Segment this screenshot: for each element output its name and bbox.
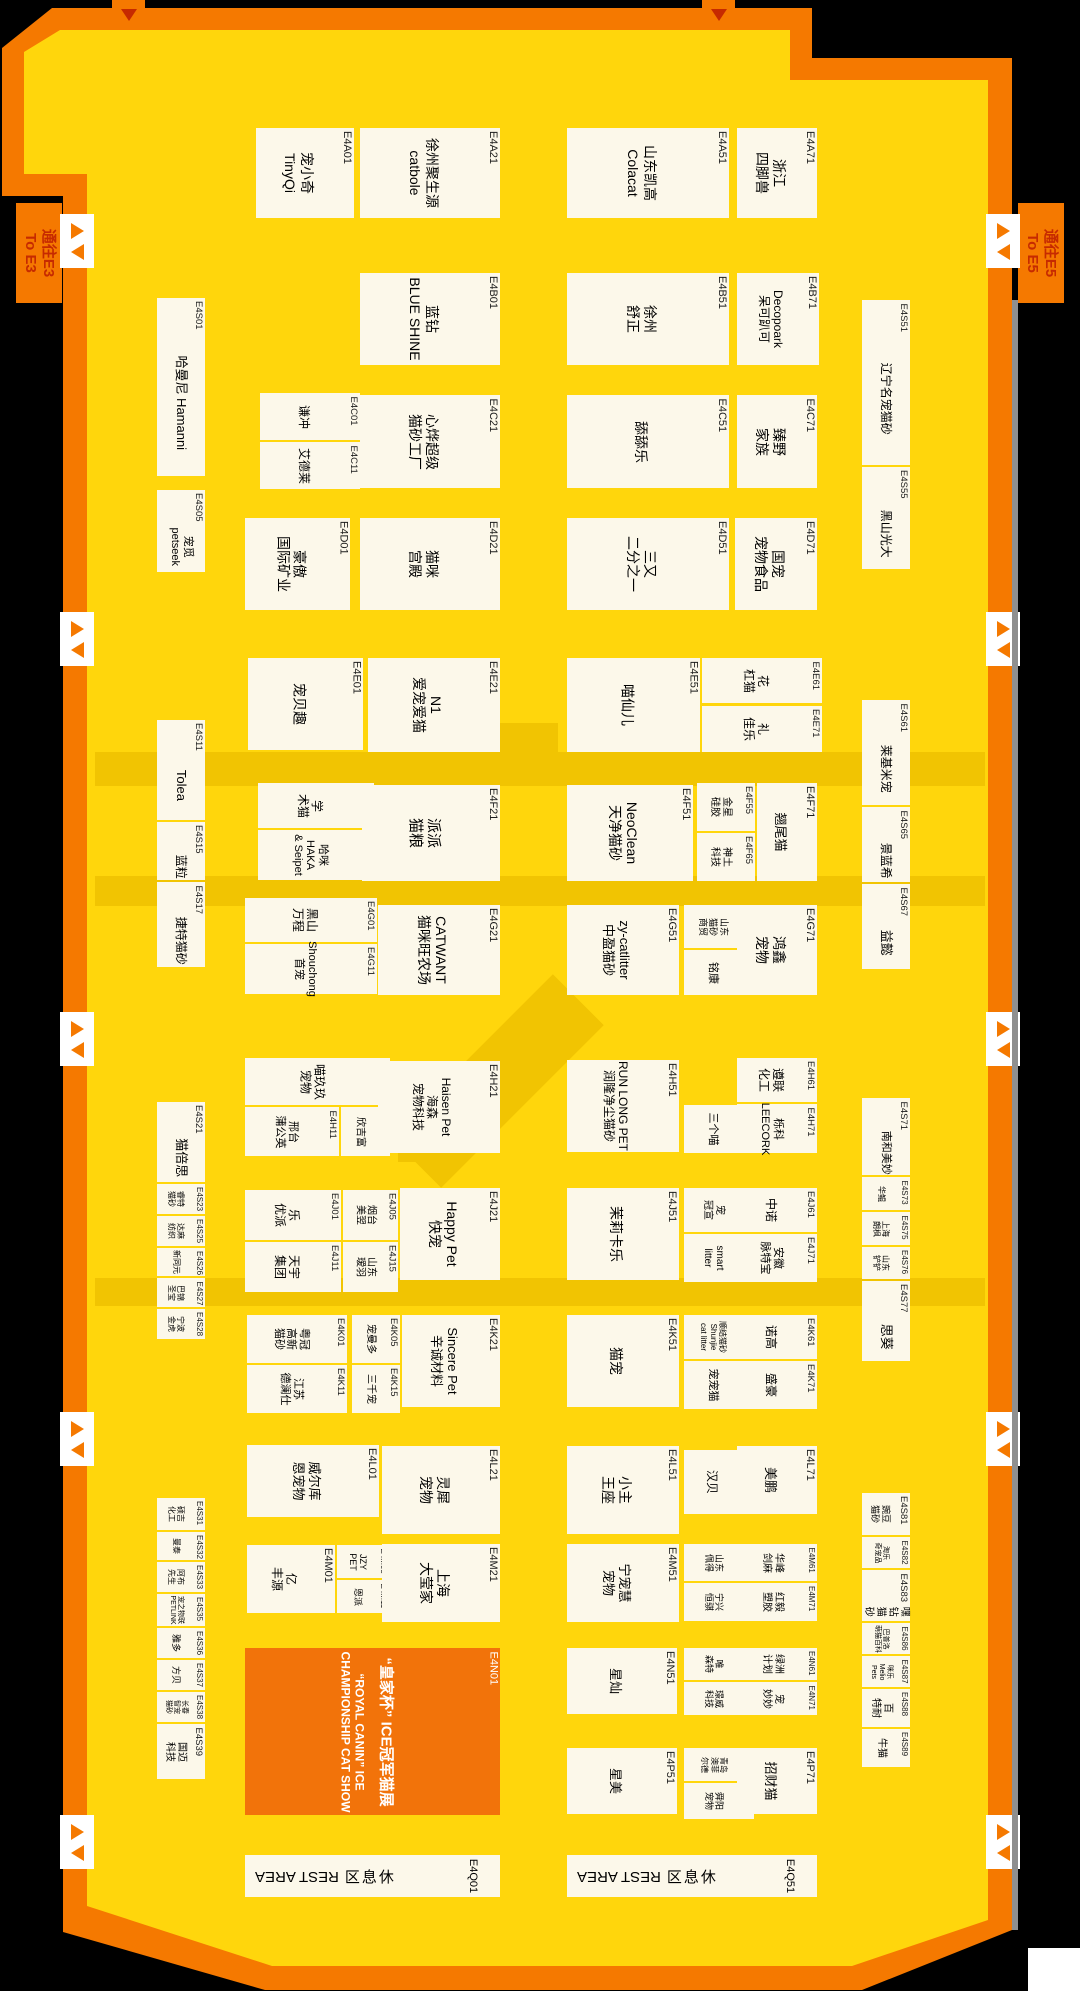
floorplan-hall-e4: E4A01宠小奇 TinyQiE4A21徐州聚生源 catboleE4A51山东…	[0, 0, 1080, 1991]
booth-exhibitor-name: 学 术猫	[258, 783, 362, 828]
booth-exhibitor-name: 咪乐 Melio Pets	[862, 1656, 900, 1687]
gate-arrow-icon	[71, 223, 84, 239]
booth-inner: E4P71招财猫	[737, 1748, 817, 1814]
booth-id-label: E4S33	[195, 1562, 205, 1592]
booth-exhibitor-name: 南和美妙	[862, 1130, 910, 1175]
booth-id-label: E4C51	[715, 395, 729, 488]
booth-id-label: E4A71	[803, 128, 817, 218]
booth-exhibitor-name: 金星 硅胶	[697, 783, 743, 831]
booth-exhibitor-name: 遵联 化工	[737, 1058, 805, 1102]
gate-arrow-icon	[997, 1042, 1010, 1058]
booth-exhibitor-name: Shouchong 首宠	[245, 944, 365, 994]
booth-inner: E4B71Decopoark 呆可趴可	[737, 273, 819, 365]
booth-exhibitor-name: 上海 朗枫	[862, 1212, 900, 1245]
booth-exhibitor-name: 黑山 万程	[245, 898, 365, 942]
booth-id-label: E4S86	[900, 1623, 910, 1654]
booth-inner: E4G01黑山 万程	[245, 898, 377, 942]
booth-E4S81: E4S81豌豆 猫砂	[862, 1493, 910, 1535]
booth-id-label: E4L71	[803, 1446, 817, 1514]
booth-id-label: E4S61	[862, 700, 910, 732]
booth-exhibitor-name: 猫宠	[567, 1315, 665, 1407]
booth-id-label: E4S75	[900, 1212, 910, 1245]
tab-arrow-icon	[121, 9, 137, 21]
booth-inner: E4H01喵玖玖 宠物	[245, 1058, 390, 1105]
rest-area-cjk-label: 区息休	[667, 1866, 718, 1887]
booth-E4A21: E4A21徐州聚生源 catbole	[360, 128, 500, 218]
booth-E4S39: E4S39国迈 科技	[157, 1724, 205, 1779]
booth-id-label: E4G21	[486, 905, 500, 995]
booth-exhibitor-name: 三个喵	[684, 1105, 742, 1153]
booth-exhibitor-name: 猫咪 宫殿	[360, 518, 486, 610]
booth-id-label: E4F21	[486, 785, 500, 881]
booth-exhibitor-name: 长春 智宠 猫砂	[157, 1692, 195, 1722]
booth-id-label: E4S67	[862, 884, 910, 916]
booth-E4S21: E4S21猫倍思	[157, 1102, 205, 1182]
booth-inner: E4S76山东 铲铲	[862, 1247, 910, 1279]
booth-id-label: E4D71	[803, 518, 817, 610]
booth-E4S15: E4S15蓝粒	[157, 822, 205, 880]
booth-exhibitor-name: 乐 优派	[245, 1190, 329, 1240]
booth-id-label: E4J61	[805, 1188, 817, 1232]
gate-arrow-icon	[997, 1021, 1010, 1037]
booth-E4S05: E4S05宠觅 petseek	[157, 490, 205, 572]
booth-exhibitor-name: 蓝钻 BLUE SHINE	[360, 273, 486, 365]
booth-id-label: E4E21	[486, 658, 500, 752]
booth-inner: E4A51山东凯高 Colacat	[567, 128, 729, 218]
to-e3-sign: 通往E3 To E3	[16, 203, 62, 303]
booth-E4M61: E4M61华峰 剑麻	[737, 1544, 817, 1581]
booth-inner: E4F51NeoClean 天净猫砂	[567, 785, 693, 881]
booth-E4L21: E4L21灵犀 宠物	[382, 1446, 500, 1534]
booth-E4K05: E4K05宠曼多	[352, 1315, 400, 1363]
booth-E4C11: E4C11艾德莱	[260, 442, 360, 489]
booth-inner: E4E01宠贝趣	[248, 658, 363, 750]
booth-id-label: E4C01	[348, 393, 360, 440]
booth-E4F01: E4F01学 术猫	[258, 783, 374, 828]
booth-E4J61: E4J61中诺	[737, 1188, 817, 1232]
booth-id-label: E4H51	[665, 1060, 679, 1152]
booth-exhibitor-name: 蓝粒	[157, 854, 205, 880]
booth-inner: E4B51徐州 舒正	[567, 273, 729, 365]
booth-inner: E4H71栎科 LEECORK	[737, 1104, 817, 1153]
booth-E4C01: E4C01谦冲	[260, 393, 360, 440]
booth-E4H71: E4H71栎科 LEECORK	[737, 1104, 817, 1153]
booth-exhibitor-name: 绿洲 计划	[737, 1648, 807, 1680]
booth-E4S77: E4S77思葵	[862, 1281, 910, 1361]
gate-arrow-icon	[71, 244, 84, 260]
booth-E4S73: E4S73华鲲	[862, 1177, 910, 1210]
booth-E4S17: E4S17捷特猫砂	[157, 882, 205, 967]
rest-area-cjk-label: 区息休	[345, 1866, 396, 1887]
booth-id-label: E4S37	[195, 1660, 205, 1690]
booth-id-label: E4S11	[157, 720, 205, 751]
gate-arrow-icon	[997, 642, 1010, 658]
booth-E4F11: E4F11哈咪 HAKA & Seipet	[258, 830, 374, 880]
booth-inner: E4E61花 杠猫	[702, 658, 822, 703]
booth-exhibitor-name: 国宠 宠物食品	[735, 518, 803, 610]
booth-exhibitor-name: 国迈 科技	[157, 1724, 193, 1779]
booth-id-label: E4S26	[195, 1248, 205, 1276]
booth-id-label: E4M61	[807, 1544, 817, 1581]
booth-exhibitor-name: zy-catlitter 中盈猫砂	[567, 905, 665, 995]
booth-exhibitor-name: 捷特猫砂	[157, 914, 205, 967]
booth-inner: E4K11江苏 德澜仕	[247, 1365, 347, 1413]
booth-E4S89: E4S89牛猫	[862, 1729, 910, 1767]
booth-inner: E4S37方贝	[157, 1660, 205, 1690]
booth-exhibitor-subtitle: “ROYAL CANIN” ICE CHAMPIONSHIP CAT SHOW	[338, 1651, 366, 1812]
gate-arrow-icon	[71, 1042, 84, 1058]
booth-E4Q01: REST AREA区息休E4Q01	[245, 1855, 500, 1897]
booth-exhibitor-name: 舜阳 宠物	[684, 1783, 744, 1819]
entrance-gate-left	[60, 214, 94, 268]
booth-exhibitor-name: 宠宠猫	[684, 1361, 742, 1409]
booth-E4S65: E4S65景蓝希	[862, 807, 910, 882]
booth-exhibitor-name: 阿布 先生	[157, 1562, 195, 1592]
booth-E4J11: E4J11天宇 集团	[245, 1242, 341, 1292]
booth-exhibitor-name: 诺高	[737, 1315, 805, 1359]
booth-exhibitor-name: 豪傲 国际矿业	[245, 518, 336, 610]
booth-exhibitor-name: 方贝	[157, 1660, 195, 1690]
booth-id-label: E4G51	[665, 905, 679, 995]
booth-id-label: E4K21	[486, 1315, 500, 1407]
booth-id-label: E4S28	[195, 1309, 205, 1339]
booth-id-label: E4K05	[388, 1315, 400, 1363]
booth-inner: E4J51茉莉卡乐	[567, 1188, 679, 1280]
booth-inner: E4S27巴锦 圣宝	[157, 1278, 205, 1307]
booth-exhibitor-name: 哈曼尼 Hamanni	[157, 330, 205, 476]
booth-exhibitor-name: 美鹏	[737, 1446, 803, 1514]
booth-E4L51: E4L51小主 王座	[567, 1446, 679, 1534]
booth-exhibitor-name: 宁宠慧 宠物	[567, 1544, 665, 1622]
booth-E4N61: E4N61绿洲 计划	[737, 1648, 817, 1680]
booth-exhibitor-name: 威尔库 恩宠物	[247, 1445, 365, 1517]
booth-exhibitor-name: 翘尾猫	[757, 783, 803, 881]
booth-id-label: E4G01	[365, 898, 377, 942]
booth-E4S55: E4S55黑山光大	[862, 467, 910, 569]
booth-inner: E4S23睿特 猫砂	[157, 1184, 205, 1214]
booth-exhibitor-name: 百 特耐	[862, 1689, 900, 1727]
booth-E4S83: E4S83嘿钻猫砂	[862, 1570, 910, 1621]
booth-id-label: E4S82	[900, 1537, 910, 1568]
booth-exhibitor-name: 花 杠猫	[702, 658, 810, 703]
booth-E4S26: E4S26新同元	[157, 1248, 205, 1276]
booth-id-label: E4S89	[900, 1729, 910, 1767]
booth-E4J51: E4J51茉莉卡乐	[567, 1188, 679, 1280]
booth-exhibitor-name: 徐州聚生源 catbole	[360, 128, 486, 218]
booth-exhibitor-name: 山东凯高 Colacat	[567, 128, 715, 218]
booth-id-label: E4S36	[195, 1628, 205, 1658]
booth-exhibitor-name: 山东 猫砂 商贸	[684, 905, 742, 948]
booth-exhibitor-name: smart litter	[684, 1234, 742, 1282]
booth-E4D21: E4D21猫咪 宫殿	[360, 518, 500, 610]
booth-inner: E4S21猫倍思	[157, 1102, 205, 1182]
booth-exhibitor-name: 宁兴 恒骐	[684, 1583, 744, 1621]
booth-inner: E4S11Tolea	[157, 720, 205, 820]
booth-inner: E4L71美鹏	[737, 1446, 817, 1514]
booth-E4S82: E4S82淘乐 奇宠品	[862, 1537, 910, 1568]
booth-exhibitor-name: 华鲲	[862, 1177, 900, 1210]
booth-id-label: E4S76	[900, 1247, 910, 1279]
booth-inner: E4F21派派 猫粮	[362, 785, 500, 881]
booth-id-label: E4A21	[486, 128, 500, 218]
booth-id-label: E4S31	[195, 1498, 205, 1530]
gate-arrow-icon	[71, 1421, 84, 1437]
booth-exhibitor-name: NeoClean 天净猫砂	[567, 785, 679, 881]
entrance-gate-left	[60, 612, 94, 666]
booth-id-label: E4M01	[321, 1545, 335, 1613]
booth-id-label: E4S23	[195, 1184, 205, 1214]
booth-id-label: E4S32	[195, 1532, 205, 1560]
booth-exhibitor-name: 豌豆 猫砂	[862, 1493, 898, 1535]
booth-exhibitor-name: 华峰 剑麻	[737, 1544, 807, 1581]
booth-inner: E4G51zy-catlitter 中盈猫砂	[567, 905, 679, 995]
booth-id-label: E4S71	[862, 1098, 910, 1130]
booth-exhibitor-name: 雅多	[157, 1628, 195, 1658]
booth-inner: E4K05宠曼多	[352, 1315, 400, 1363]
booth-exhibitor-name: 喵玖玖 宠物	[245, 1058, 378, 1105]
booth-inner: E4D01豪傲 国际矿业	[245, 518, 350, 610]
booth-inner: E4S28宁波 金虎	[157, 1309, 205, 1339]
gate-arrow-icon	[71, 1845, 84, 1861]
booth-inner: E4S38长春 智宠 猫砂	[157, 1692, 205, 1722]
booth-exhibitor-name: 达麻 纺织	[157, 1216, 195, 1246]
booth-id-label: E4J21	[486, 1188, 500, 1280]
booth-inner: E4S35宠之物联 PETLINK	[157, 1594, 205, 1626]
booth-exhibitor-name: 璟威 科技	[684, 1682, 744, 1715]
booth-exhibitor-name: 茉莉卡乐	[567, 1188, 665, 1280]
gate-arrow-icon	[71, 1824, 84, 1840]
booth-exhibitor-name: 天宇 集团	[245, 1242, 329, 1292]
entrance-gate-left	[60, 1815, 94, 1869]
booth-id-label: E4Q51	[784, 1859, 796, 1893]
booth-id-label: E4S17	[157, 882, 205, 914]
booth-E4F71: E4F71翘尾猫	[757, 783, 817, 881]
booth-E4S25: E4S25达麻 纺织	[157, 1216, 205, 1246]
booth-id-label: E4N01	[486, 1648, 500, 1815]
booth-id-label: E4J15	[386, 1242, 398, 1292]
booth-inner: E4M51宁宠慧 宠物	[567, 1544, 679, 1622]
booth-inner: E4H51RUN LONG PET 润隆净尘猫砂	[567, 1060, 679, 1152]
booth-exhibitor-name: 汉贝	[684, 1450, 740, 1514]
booth-E4C71: E4C71臻野 家族	[737, 395, 817, 488]
booth-id-label: E4A51	[715, 128, 729, 218]
booth-inner: E4P51星美	[567, 1748, 677, 1814]
booth-E4S37: E4S37方贝	[157, 1660, 205, 1690]
booth-id-label: E4Q01	[467, 1859, 479, 1893]
booth-inner: E4S25达麻 纺织	[157, 1216, 205, 1246]
booth-E4K15: E4K15三千宠	[352, 1365, 400, 1413]
entrance-gate-left	[60, 1412, 94, 1466]
aisle-strip	[95, 752, 985, 786]
booth-exhibitor-name: 辽宁名宠猫砂	[862, 332, 910, 465]
booth-inner: E4S32曼泰	[157, 1532, 205, 1560]
booth-exhibitor-name: 盛豪	[737, 1361, 805, 1409]
booth-inner: E4F01学 术猫	[258, 783, 374, 828]
booth-E4J15: E4J15山东 瑷羽	[343, 1242, 398, 1292]
rest-area-content: REST AREA区息休E4Q51	[567, 1855, 817, 1897]
booth-id-label: E4P51	[663, 1748, 677, 1814]
booth-id-label: E4K51	[665, 1315, 679, 1407]
booth-id-label: E4D51	[715, 518, 729, 610]
booth-exhibitor-name: 淘乐 奇宠品	[862, 1537, 900, 1568]
booth-E4J01: E4J01乐 优派	[245, 1190, 341, 1240]
booth-id-label: E4N51	[663, 1648, 677, 1714]
booth-E4C51: E4C51舔舔乐	[567, 395, 729, 488]
booth-exhibitor-name: Happy Pet 快宠	[400, 1188, 486, 1280]
booth-E4J71: E4J71安徽 脉特宝	[737, 1234, 817, 1282]
booth-id-label: E4D01	[336, 518, 350, 610]
booth-exhibitor-name: 山东 佩得	[684, 1544, 744, 1581]
booth-exhibitor-name: 烟台 美翌	[343, 1190, 386, 1240]
booth-inner: E4H11邢台 蒲公英	[245, 1107, 339, 1156]
to-e5-sign: 通往E5 To E5	[1018, 203, 1064, 303]
booth-inner: E4S17捷特猫砂	[157, 882, 205, 967]
sign-text: 通往E3 To E3	[16, 203, 62, 303]
booth-id-label: E4J71	[805, 1234, 817, 1282]
booth-id-label: E4H71	[805, 1104, 817, 1153]
booth-id-label: E4S25	[195, 1216, 205, 1246]
booth-E4K61: E4K61诺高	[737, 1315, 817, 1359]
booth-exhibitor-name: 礼 佳乐	[702, 706, 810, 752]
booth-E4F65: E4F65神土 科技	[697, 833, 755, 881]
booth-E4G51: E4G51zy-catlitter 中盈猫砂	[567, 905, 679, 995]
booth-id-label: E4D21	[486, 518, 500, 610]
booth-E4S67: E4S67益懿	[862, 884, 910, 969]
booth-id-label: E4L51	[665, 1446, 679, 1534]
booth-inner: E4N61绿洲 计划	[737, 1648, 817, 1680]
booth-inner: E4J61中诺	[737, 1188, 817, 1232]
booth-E4S31: E4S31硕吉 化工	[157, 1498, 205, 1530]
rest-area-en-label: REST AREA	[577, 1868, 661, 1885]
booth-inner: E4M61华峰 剑麻	[737, 1544, 817, 1581]
booth-inner: E4S51辽宁名宠猫砂	[862, 300, 910, 465]
booth-inner: E4S36雅多	[157, 1628, 205, 1658]
booth-exhibitor-name: 招财猫	[737, 1748, 803, 1814]
booth-E4S38: E4S38长春 智宠 猫砂	[157, 1692, 205, 1722]
booth-exhibitor-name: 硕吉 化工	[157, 1498, 195, 1530]
booth-exhibitor-name: 红毅 塑胶	[737, 1583, 807, 1621]
booth-inner: E4C01谦冲	[260, 393, 360, 440]
booth-id-label: E4E71	[810, 706, 822, 752]
booth-id-label: E4S73	[900, 1177, 910, 1210]
booth-inner: E4C71臻野 家族	[737, 395, 817, 488]
booth-exhibitor-name: 黑山光大	[862, 499, 910, 569]
booth-exhibitor-name: 嘿钻猫砂	[862, 1602, 910, 1621]
booth-id-label: E4M21	[486, 1544, 500, 1622]
gate-arrow-icon	[71, 642, 84, 658]
aisle-strip	[95, 1278, 985, 1306]
booth-exhibitor-name: 鸿鑫 宠物	[737, 905, 803, 995]
booth-id-label: E4K71	[805, 1361, 817, 1409]
booth-E4K71: E4K71盛豪	[737, 1361, 817, 1409]
booth-inner: E4C51舔舔乐	[567, 395, 729, 488]
booth-E4H21: E4H21Haisen Pet 海森 宠物科技	[378, 1061, 500, 1153]
booth-id-label: E4A01	[340, 128, 354, 218]
booth-exhibitor-name: 睿特 猫砂	[157, 1184, 195, 1214]
booth-E4S75: E4S75上海 朗枫	[862, 1212, 910, 1245]
booth-inner: E4E21N1 爱宠爱猫	[368, 658, 500, 752]
booth-inner: E4M01亿 丰源	[247, 1545, 335, 1613]
entrance-gate-left	[60, 1012, 94, 1066]
booth-exhibitor-name: 宠 冠宣	[684, 1188, 742, 1232]
booth-E4Q51: REST AREA区息休E4Q51	[567, 1855, 817, 1897]
booth-inner: E4L01威尔库 恩宠物	[247, 1445, 379, 1517]
gate-arrow-icon	[71, 1442, 84, 1458]
booth-inner: E4C21心烨超级 猫砂工厂	[360, 395, 500, 488]
booth-inner: E4S87咪乐 Melio Pets	[862, 1656, 910, 1687]
booth-inner: E4S31硕吉 化工	[157, 1498, 205, 1530]
booth-exhibitor-name: 宠小奇 TinyQi	[256, 128, 340, 218]
booth-E4K01: E4K01粤冠 高新 猫砂	[247, 1315, 347, 1363]
booth-exhibitor-name: 三又 二分之一	[567, 518, 715, 610]
booth-inner: E4F11哈咪 HAKA & Seipet	[258, 830, 374, 880]
booth-E4S27: E4S27巴锦 圣宝	[157, 1278, 205, 1307]
gate-arrow-icon	[997, 223, 1010, 239]
booth-inner: E4K61诺高	[737, 1315, 817, 1359]
tab-arrow-icon	[711, 9, 727, 21]
booth-inner: E4S15蓝粒	[157, 822, 205, 880]
booth-E4M71: E4M71红毅 塑胶	[737, 1583, 817, 1621]
booth-id-label: E4C11	[348, 442, 360, 489]
booth-exhibitor-name: 艾德莱	[260, 442, 348, 489]
booth-E4D01: E4D01豪傲 国际矿业	[245, 518, 350, 610]
booth-exhibitor-name: 巴锦 圣宝	[157, 1278, 195, 1307]
entrance-tab-top	[112, 0, 145, 30]
booth-inner: E4S88百 特耐	[862, 1689, 910, 1727]
booth-exhibitor-name: 唯 森特	[684, 1648, 744, 1680]
booth-E4S71: E4S71南和美妙	[862, 1098, 910, 1175]
booth-id-label: E4S77	[862, 1281, 910, 1313]
booth-exhibitor-name: Haisen Pet 海森 宠物科技	[378, 1061, 486, 1153]
booth-exhibitor-name: 中诺	[737, 1188, 805, 1232]
booth-exhibitor-name: 神土 科技	[697, 833, 743, 881]
booth-E4B71: E4B71Decopoark 呆可趴可	[737, 273, 819, 365]
booth-exhibitor-name: 宠 妙妙	[737, 1682, 807, 1715]
booth-id-label: E4P71	[803, 1748, 817, 1814]
booth-id-label: E4B51	[715, 273, 729, 365]
booth-inner: E4S73华鲲	[862, 1177, 910, 1210]
booth-E4A01: E4A01宠小奇 TinyQi	[256, 128, 354, 218]
booth-inner: E4J05烟台 美翌	[343, 1190, 398, 1240]
booth-inner: E4A01宠小奇 TinyQi	[256, 128, 354, 218]
booth-E4E71: E4E71礼 佳乐	[702, 706, 822, 752]
booth-id-label: E4K61	[805, 1315, 817, 1359]
booth-id-label: E4S35	[195, 1594, 205, 1626]
booth-exhibitor-name: RUN LONG PET 润隆净尘猫砂	[567, 1060, 665, 1152]
entrance-tab-top	[702, 0, 735, 30]
booth-inner: E4S67益懿	[862, 884, 910, 969]
booth-id-label: E4F65	[743, 833, 755, 881]
booth-exhibitor-name: 宠曼多	[352, 1315, 388, 1363]
booth-E4H51: E4H51RUN LONG PET 润隆净尘猫砂	[567, 1060, 679, 1152]
booth-id-label: E4B71	[805, 273, 819, 365]
booth-E4E01: E4E01宠贝趣	[248, 658, 363, 750]
booth-inner: E4N51星灿	[567, 1648, 677, 1714]
sign-inner: 通往E5 To E5	[1018, 203, 1064, 303]
booth-id-label: E4S65	[862, 807, 910, 839]
booth-id-label: E4L01	[365, 1445, 379, 1517]
booth-id-label: E4F55	[743, 783, 755, 831]
booth-id-label: E4F51	[679, 785, 693, 881]
booth-id-label: E4G11	[365, 944, 377, 994]
booth-E4M01: E4M01亿 丰源	[247, 1545, 335, 1613]
booth-inner: E4S65景蓝希	[862, 807, 910, 882]
booth-E4S86: E4S86巴普洛 萌猫百科	[862, 1623, 910, 1654]
booth-exhibitor-name: CATWANT 猫咪旺农场	[378, 905, 486, 995]
gate-arrow-icon	[997, 1824, 1010, 1840]
booth-E4K11: E4K11江苏 德澜仕	[247, 1365, 347, 1413]
booth-id-label: E4J11	[329, 1242, 341, 1292]
